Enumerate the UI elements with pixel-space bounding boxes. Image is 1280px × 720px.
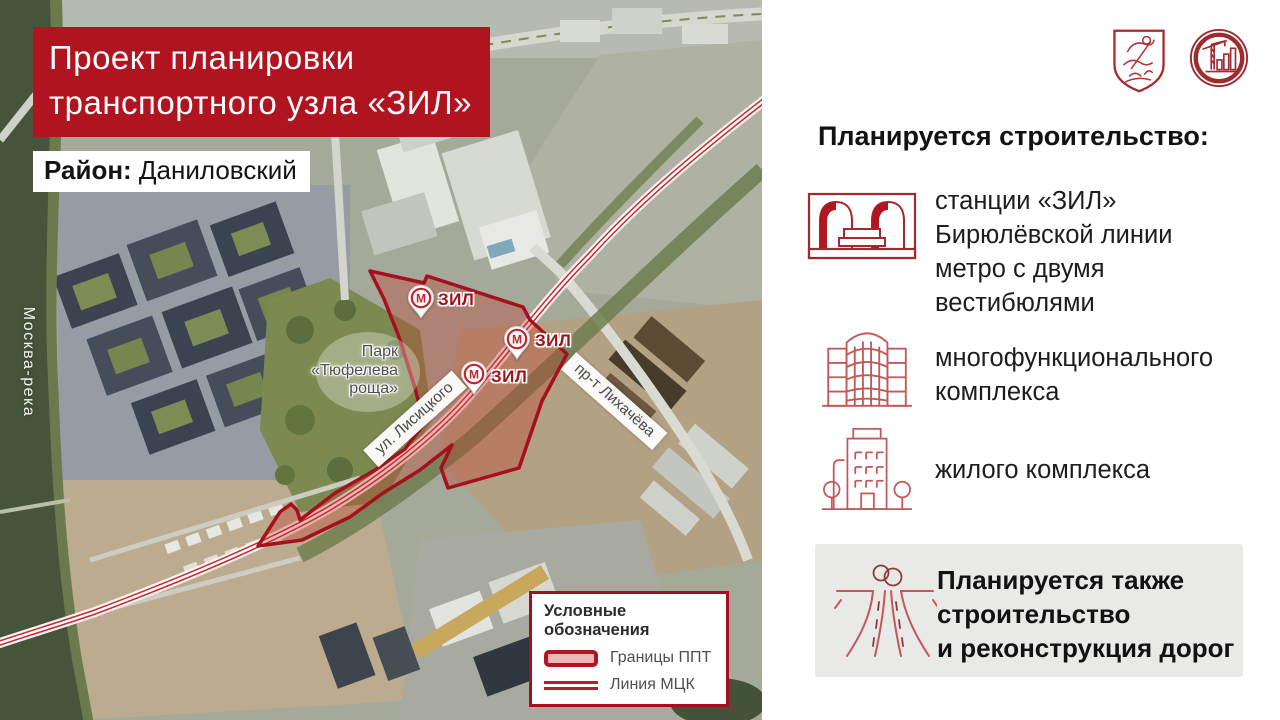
district-value: Даниловский: [139, 155, 297, 185]
metro-pin-icon[interactable]: М: [503, 325, 531, 361]
legend-row-ppt: Границы ППТ: [544, 649, 714, 667]
river-label: Москва-река: [19, 307, 37, 418]
district-label: Район:: [44, 155, 132, 185]
map-legend: Условные обозначения Границы ППТ Линия М…: [529, 591, 729, 707]
roads-note-box: Планируется также строительство и реконс…: [815, 544, 1243, 677]
mixed-use-complex-icon: [818, 318, 916, 417]
roads-icon: [833, 556, 937, 669]
map-title: Проект планировки транспортного узла «ЗИ…: [33, 27, 490, 137]
residential-complex-icon: [820, 421, 914, 520]
svg-text:М: М: [512, 333, 522, 347]
metro-station-label[interactable]: ЗИЛ: [535, 331, 571, 351]
info-panel: Планируется строительство: станции «ЗИЛ»…: [762, 0, 1280, 720]
district-box: Район: Даниловский: [33, 151, 310, 192]
planned-item-text: станции «ЗИЛ» Бирюлёвской линии метро с …: [935, 184, 1172, 320]
legend-label: Границы ППТ: [610, 649, 711, 667]
construction-complex-logo-icon: [1188, 27, 1250, 94]
metro-station-icon: [806, 191, 918, 272]
legend-label: Линия МЦК: [610, 676, 695, 694]
metro-station-label[interactable]: ЗИЛ: [491, 367, 527, 387]
mcc-line-swatch: [544, 681, 598, 690]
metro-station-label[interactable]: ЗИЛ: [438, 290, 474, 310]
logos: [1108, 27, 1250, 100]
planned-item-text: жилого комплекса: [935, 453, 1150, 487]
ppt-boundary-swatch: [544, 650, 598, 667]
panel-heading: Планируется строительство:: [818, 121, 1209, 152]
svg-text:М: М: [469, 368, 479, 382]
planned-item-text: многофункционального комплекса: [935, 341, 1213, 409]
slide: Проект планировки транспортного узла «ЗИ…: [0, 0, 1280, 720]
metro-pin-icon[interactable]: М: [460, 360, 488, 396]
park-label: Парк «Тюфелева роща»: [302, 343, 398, 399]
roads-note-text: Планируется также строительство и реконс…: [937, 563, 1234, 665]
svg-text:М: М: [416, 292, 426, 306]
metro-pin-icon[interactable]: М: [407, 284, 435, 320]
legend-row-mcc: Линия МЦК: [544, 676, 714, 694]
legend-title: Условные обозначения: [544, 602, 714, 640]
satellite-map: Проект планировки транспортного узла «ЗИ…: [0, 0, 762, 720]
moscow-coat-of-arms-icon: [1108, 27, 1170, 100]
